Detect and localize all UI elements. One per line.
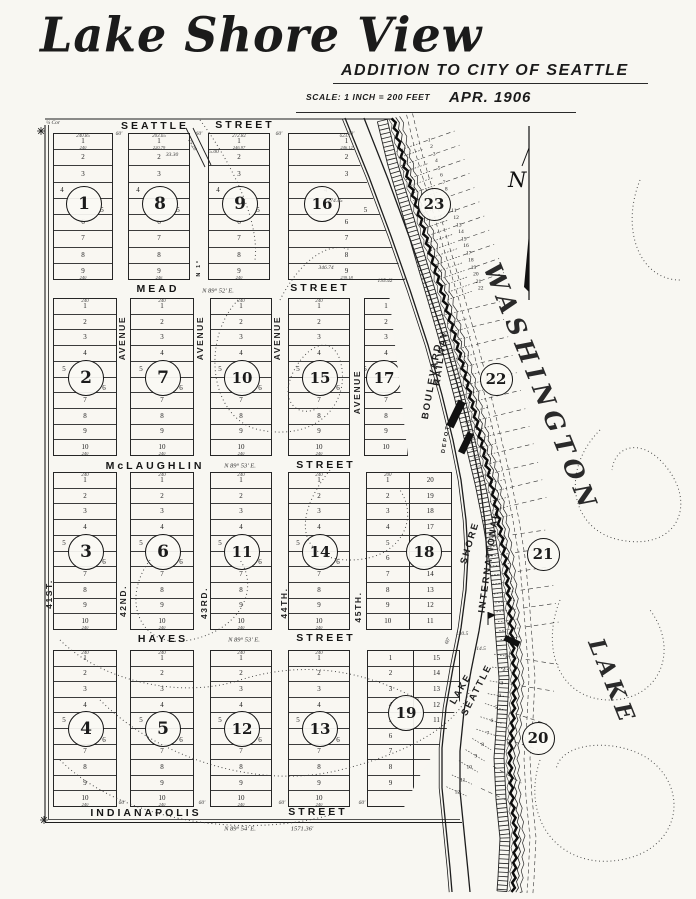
lot-number: 4 <box>160 702 164 709</box>
lot-number: 8 <box>386 587 390 594</box>
lot-row: 9 <box>54 775 116 791</box>
lot-row: 9 <box>289 775 349 791</box>
block-top-dimension: 240.85 <box>76 134 90 139</box>
street-label: McLAUGHLIN <box>106 460 205 472</box>
lot-row: 8 <box>54 582 116 598</box>
lot-row: 8 <box>211 582 271 598</box>
bearing-label: N 89° 53' E. <box>228 637 260 644</box>
block-1: 1240.85240234567892401 <box>53 133 113 280</box>
lot-row: 2 <box>211 314 271 330</box>
block-number-badge: 8 <box>142 186 178 222</box>
lot-row: 8 <box>368 759 413 775</box>
ave-label: 43RD. <box>199 587 209 619</box>
lot-row: 10240 <box>211 613 271 629</box>
lot-number: 9 <box>237 268 241 275</box>
lot-number: 9 <box>317 780 321 787</box>
block-number-badge: 15 <box>302 360 338 396</box>
lot-number: 9 <box>239 780 243 787</box>
block-top-dimension: 240 <box>315 473 323 478</box>
lot-number: 7 <box>345 235 349 242</box>
lot-number: 10 <box>159 444 166 451</box>
lot-row: 9 <box>368 775 413 791</box>
lot-row: 10240 <box>289 439 349 455</box>
lot-row <box>414 744 459 760</box>
street-label: STREET <box>288 806 347 818</box>
lot-number: 12 <box>433 702 440 709</box>
lot-number: 7 <box>317 571 321 578</box>
lot-number: 7 <box>239 748 243 755</box>
block-top-dimension: 272.82 <box>232 134 246 139</box>
block-18: 120023456789102019181716151413121118 <box>366 472 452 630</box>
lot-row: 1623.73246.12 <box>289 134 404 149</box>
dim-label: 60' <box>348 131 355 137</box>
lot-row: 2 <box>54 666 116 682</box>
lot-row: 3 <box>211 503 271 519</box>
lot-number: 13 <box>433 686 440 693</box>
lot-number: 8 <box>81 252 85 259</box>
lot-row: 3 <box>209 165 269 181</box>
lot-number: 2 <box>389 670 393 677</box>
block-19: 123456789151413121119 <box>367 650 460 807</box>
lot-number: 5 <box>218 717 222 724</box>
lot-row: 3 <box>54 681 116 697</box>
lot-row: 9 <box>289 424 349 440</box>
block-top-dimension: 240 <box>237 299 245 304</box>
lot-row: 2 <box>54 488 116 504</box>
lot-number: 4 <box>60 187 64 194</box>
shore-lot-number: 21 <box>476 279 482 285</box>
map-subtitle: ADDITION TO CITY OF SEATTLE <box>341 62 629 80</box>
lot-number: 9 <box>317 602 321 609</box>
lot-row: 1240 <box>211 651 271 666</box>
block-top-dimension: 240 <box>81 299 89 304</box>
lot-number: 15 <box>433 655 440 662</box>
block-number-badge: 22 <box>480 363 513 396</box>
lot-row: 3 <box>131 329 193 345</box>
lot-number: 2 <box>83 670 87 677</box>
shore-lot-number: 7 <box>486 730 489 736</box>
lot-number: 7 <box>160 748 164 755</box>
lot-number: 4 <box>317 350 321 357</box>
lot-row: 9240 <box>54 263 112 279</box>
lot-row: 7 <box>209 230 269 246</box>
shore-lot-number: 12 <box>455 789 461 795</box>
block-16: 1623.73246.1223456789239.1816 <box>288 133 405 280</box>
street-label: STREET <box>296 459 355 471</box>
lot-number: 10 <box>82 444 89 451</box>
lot-number: 2 <box>386 493 390 500</box>
lot-number: 3 <box>389 686 393 693</box>
lot-row: 3 <box>289 165 404 181</box>
block-top-dimension: 240 <box>237 473 245 478</box>
lot-row: 19 <box>410 488 452 504</box>
lot-row: 1240 <box>289 651 349 666</box>
lot-dimension: 240 <box>82 451 89 456</box>
block-number-badge: 7 <box>145 360 181 396</box>
map-date: APR. 1906 <box>449 89 531 106</box>
lot-row: 1240 <box>54 473 116 488</box>
lot-number: 3 <box>83 334 87 341</box>
lot-number: 6 <box>386 555 390 562</box>
lot-number: 4 <box>317 702 321 709</box>
lot-row: 7 <box>54 230 112 246</box>
block-9: 1272.82246.97234567892409 <box>208 133 270 280</box>
street-label: MEAD <box>137 283 180 295</box>
street-label: HAYES <box>138 633 188 645</box>
dim-label: ¼ Cor <box>46 120 60 126</box>
block-number-badge: 11 <box>224 534 260 570</box>
lot-row: 8 <box>367 582 409 598</box>
lot-row: 7 <box>367 566 409 582</box>
dim-label: 60' <box>359 800 366 806</box>
lot-number: 8 <box>317 587 321 594</box>
lot-row: 3 <box>211 681 271 697</box>
lot-row: 2 <box>368 666 413 682</box>
lot-row <box>414 759 459 775</box>
shore-lot-number: 2 <box>503 666 506 672</box>
block-number-badge: 3 <box>68 534 104 570</box>
lot-number: 2 <box>317 319 321 326</box>
lot-row: 8 <box>211 759 271 775</box>
shore-lot-number: 18 <box>468 257 474 263</box>
lot-number: 1 <box>389 655 393 662</box>
lot-number: 20 <box>427 477 434 484</box>
street-label: STREET <box>215 119 274 131</box>
lot-row: 2 <box>289 314 349 330</box>
lot-number: 10 <box>82 618 89 625</box>
lot-dimension: 240 <box>159 625 166 630</box>
shore-lot-number: 15 <box>461 237 467 243</box>
lot-row: 9 <box>211 598 271 614</box>
lot-number: 3 <box>160 334 164 341</box>
lot-number: 3 <box>83 686 87 693</box>
lot-number: 2 <box>160 670 164 677</box>
lot-number: 7 <box>81 235 85 242</box>
lot-row: 1 <box>365 299 407 314</box>
lot-row: 12 <box>410 598 452 614</box>
lot-row: 18 <box>410 503 452 519</box>
shore-lot-number: 19 <box>471 265 477 271</box>
lot-number: 6 <box>403 385 407 392</box>
lot-row: 8 <box>289 247 404 263</box>
lot-number: 5 <box>296 717 300 724</box>
lot-number: 7 <box>160 397 164 404</box>
lot-row: 1240 <box>289 473 349 488</box>
lot-row: 2 <box>131 666 193 682</box>
dim-label: 130.5 <box>456 631 468 637</box>
lot-number: 3 <box>239 334 243 341</box>
block-number-badge: 13 <box>302 711 338 747</box>
block-number-badge: 14 <box>302 534 338 570</box>
shore-lot-number: 5 <box>438 166 441 172</box>
lake-label: LAKE <box>582 635 641 730</box>
lot-row: 5 <box>367 535 409 551</box>
ave-label: 42ND. <box>118 585 128 617</box>
shore-lot-number: 5 <box>495 705 498 711</box>
ave-label: 44TH. <box>279 587 289 618</box>
street-label: INDIANAPOLIS <box>90 807 201 819</box>
ave-label: AVENUE <box>272 316 282 360</box>
shore-lot-number: 13 <box>456 222 462 228</box>
lot-number: 8 <box>384 413 388 420</box>
lot-row: 9 <box>54 424 116 440</box>
dim-label: 60' <box>279 800 286 806</box>
lot-number: 7 <box>237 235 241 242</box>
dim-label: 274.45 <box>327 198 342 204</box>
lot-number: 10 <box>316 444 323 451</box>
shore-lot-number: 2 <box>430 144 433 150</box>
bearing-label: 1571.36' <box>291 826 314 833</box>
shore-lot-number: 6 <box>490 718 493 724</box>
lot-number: 10 <box>159 618 166 625</box>
lot-row: 4 <box>131 519 193 535</box>
lot-row: 2 <box>211 488 271 504</box>
lot-number: 2 <box>345 154 349 161</box>
lot-row: 10240 <box>289 613 349 629</box>
lot-row: 4 <box>131 345 193 361</box>
lot-number: 1 <box>384 303 388 310</box>
lot-number: 7 <box>239 571 243 578</box>
lot-number: 1 <box>81 138 85 145</box>
lot-row: 3 <box>211 329 271 345</box>
lot-number: 2 <box>83 319 87 326</box>
lot-number: 3 <box>160 508 164 515</box>
lot-number: 2 <box>83 493 87 500</box>
shore-lot-number: 12 <box>453 215 459 221</box>
lot-row: 17 <box>410 519 452 535</box>
lot-number: 2 <box>160 493 164 500</box>
lot-dimension: 240 <box>316 451 323 456</box>
lot-number: 1 <box>345 138 349 145</box>
lot-row: 9246 <box>129 263 189 279</box>
shore-lot-number: 11 <box>460 777 466 783</box>
lot-row: 4 <box>54 519 116 535</box>
block-19-lots: 1514131211 <box>413 651 459 806</box>
lot-number: 14 <box>433 670 440 677</box>
lot-number: 5 <box>364 207 368 214</box>
lot-row: 10240 <box>131 439 193 455</box>
block-5: 124023456789102405 <box>130 650 194 807</box>
lot-row <box>414 775 459 791</box>
block-number-badge: 17 <box>366 360 402 396</box>
lot-number: 2 <box>157 154 161 161</box>
lot-row <box>414 728 459 744</box>
shore-lot-number: 1 <box>428 137 431 143</box>
lot-row: 2 <box>131 488 193 504</box>
lot-dimension: 240 <box>80 275 87 280</box>
lot-number: 2 <box>317 493 321 500</box>
lot-row <box>368 790 413 806</box>
lot-number: 18 <box>427 508 434 515</box>
lot-number: 9 <box>239 602 243 609</box>
block-11: 1240234567891024011 <box>210 472 272 630</box>
lot-number: 9 <box>384 428 388 435</box>
lot-row: 9 <box>365 424 407 440</box>
lot-number: 12 <box>427 602 434 609</box>
lot-row: 2 <box>54 314 116 330</box>
dim-label: 60' <box>116 131 123 137</box>
lot-number: 8 <box>237 252 241 259</box>
lot-row: 1240 <box>131 299 193 314</box>
lot-number: 4 <box>317 524 321 531</box>
block-15: 1240234567891024015 <box>288 298 350 456</box>
lot-number: 10 <box>384 618 391 625</box>
lot-number: 7 <box>83 571 87 578</box>
lot-row: 8 <box>211 408 271 424</box>
lot-number: 9 <box>345 268 349 275</box>
lot-number: 8 <box>239 413 243 420</box>
lot-number: 9 <box>81 268 85 275</box>
ave-label: 45TH. <box>353 591 363 622</box>
lot-dimension: 240 <box>82 625 89 630</box>
shore-lot-number: 4 <box>498 693 501 699</box>
block-top-dimension: 240 <box>237 651 245 656</box>
street-label: STREET <box>296 632 355 644</box>
lot-number: 9 <box>386 602 390 609</box>
lot-number: 3 <box>157 171 161 178</box>
block-10: 1240234567891024010 <box>210 298 272 456</box>
lot-number: 2 <box>160 319 164 326</box>
lot-number: 3 <box>317 508 321 515</box>
lot-row: 9 <box>131 598 193 614</box>
lot-row: 4 <box>211 345 271 361</box>
lot-number: 4 <box>160 524 164 531</box>
street-label: SEATTLE <box>121 120 189 132</box>
map-title: Lake Shore View <box>40 7 482 63</box>
block-number-badge: 1 <box>66 186 102 222</box>
lot-row: 3 <box>365 329 407 345</box>
shore-lot-number: 9 <box>475 753 478 759</box>
north-arrow-label: N <box>508 168 526 192</box>
lot-number: 3 <box>81 171 85 178</box>
dim-label: 60' <box>444 637 452 646</box>
bearing-label: N 89° 54' E. <box>224 826 256 833</box>
lot-dimension: 240 <box>238 802 245 807</box>
lot-row: 4 <box>367 519 409 535</box>
lot-row: 9 <box>289 598 349 614</box>
lot-row: 8 <box>129 247 189 263</box>
lot-row: 10 <box>367 613 409 629</box>
lot-row: 2 <box>129 149 189 165</box>
lot-row: 1240 <box>289 299 349 314</box>
lot-number: 5 <box>296 540 300 547</box>
lot-number: 5 <box>62 717 66 724</box>
block-number-badge: 19 <box>388 695 424 731</box>
lot-row: 10240 <box>54 790 116 806</box>
lot-number: 7 <box>317 397 321 404</box>
lot-number: 9 <box>157 268 161 275</box>
lot-row: 8 <box>131 582 193 598</box>
lot-number: 9 <box>160 780 164 787</box>
lot-row: 3 <box>54 503 116 519</box>
dim-label: 60' <box>276 131 283 137</box>
lot-number: 4 <box>239 702 243 709</box>
lot-number: 8 <box>83 587 87 594</box>
dim-label: 346.74 <box>318 265 333 271</box>
lot-row: 1 <box>368 651 413 666</box>
lot-number: 14 <box>427 571 434 578</box>
lot-row: 10240 <box>211 790 271 806</box>
lot-number: 10 <box>316 795 323 802</box>
lot-number: 11 <box>427 618 434 625</box>
lot-row: 3 <box>367 503 409 519</box>
block-number-badge: 9 <box>222 186 258 222</box>
lot-row: 8 <box>289 759 349 775</box>
bearing-label: N 89° 52' E. <box>202 288 234 295</box>
lot-row: 2 <box>131 314 193 330</box>
block-number-badge: 12 <box>224 711 260 747</box>
lot-number: 9 <box>160 428 164 435</box>
lot-number: 4 <box>160 350 164 357</box>
street-label: STREET <box>290 282 349 294</box>
lot-row: 1240 <box>211 299 271 314</box>
scale-note: SCALE: 1 INCH = 200 FEET <box>306 92 430 102</box>
lot-number: 2 <box>237 154 241 161</box>
block-top-dimension: 240 <box>81 651 89 656</box>
lot-row: 4 <box>289 519 349 535</box>
lot-number: 9 <box>389 780 393 787</box>
lot-row: 8 <box>289 582 349 598</box>
lot-row: 3 <box>131 681 193 697</box>
block-6: 124023456789102406 <box>130 472 194 630</box>
lot-row: 7 <box>368 744 413 760</box>
lot-number: 4 <box>83 524 87 531</box>
lot-row: 8 <box>131 408 193 424</box>
lot-row: 15 <box>414 651 459 666</box>
lot-row: 2 <box>54 149 112 165</box>
block-top-dimension: 200 <box>384 473 392 478</box>
ave-label: N 1° <box>196 259 202 276</box>
lot-number: 8 <box>160 587 164 594</box>
block-17: 1234567891017 <box>364 298 408 456</box>
lot-row: 8 <box>209 247 269 263</box>
lot-number: 3 <box>386 508 390 515</box>
block-top-dimension: 240 <box>158 473 166 478</box>
lot-row: 1272.82246.97 <box>209 134 269 149</box>
lot-number: 2 <box>239 670 243 677</box>
lot-row: 8 <box>365 408 407 424</box>
lot-row: 9 <box>367 598 409 614</box>
lot-row: 10240 <box>131 790 193 806</box>
block-number-badge: 4 <box>68 711 104 747</box>
lot-number: 8 <box>317 764 321 771</box>
lot-dimension: 240 <box>82 802 89 807</box>
shore-lot-number: 22 <box>478 286 484 292</box>
lot-number: 5 <box>386 540 390 547</box>
shore-lot-number: 11 <box>451 208 457 214</box>
lot-number: 7 <box>239 397 243 404</box>
lot-number: 1 <box>237 138 241 145</box>
lot-row: 1240 <box>131 473 193 488</box>
block-number-badge: 23 <box>418 188 451 221</box>
lot-dimension: 240 <box>236 275 243 280</box>
block-number-badge: 16 <box>304 186 340 222</box>
lot-number: 9 <box>83 780 87 787</box>
lot-number: 3 <box>160 686 164 693</box>
dim-label: 33.30 <box>166 152 178 158</box>
lot-row: 8 <box>54 247 112 263</box>
lot-number: 5 <box>62 540 66 547</box>
block-4: 124023456789102404 <box>53 650 117 807</box>
lot-number: 3 <box>317 686 321 693</box>
shore-lot-number: 3 <box>433 152 436 158</box>
lot-row <box>414 790 459 806</box>
lot-number: 5 <box>139 717 143 724</box>
ave-label: AVENUE <box>117 316 127 360</box>
lot-number: 3 <box>83 508 87 515</box>
lot-number: 4 <box>239 524 243 531</box>
cor-label: RAILWAY <box>432 329 451 386</box>
